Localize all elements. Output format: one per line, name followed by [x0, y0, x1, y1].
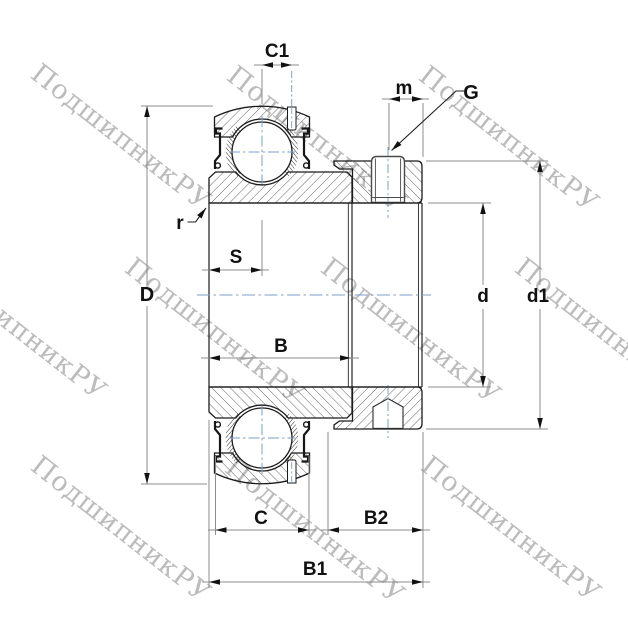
inner-ring-section — [209, 172, 352, 203]
arrowhead-b1-left — [209, 579, 220, 585]
arrowhead-b-right — [340, 355, 351, 361]
label-b: B — [274, 336, 288, 357]
g-leader-line — [392, 91, 465, 151]
arrowhead-b2-right — [412, 527, 423, 533]
arrowhead-c-right — [298, 527, 309, 533]
drawing-canvas: ПодшипникРУПодшипникРУПодшипникРУПодшипн… — [0, 0, 628, 638]
label-c1: C1 — [265, 41, 290, 62]
dimension-layer — [141, 65, 548, 588]
label-D: D — [140, 284, 154, 306]
dimension-c1 — [254, 65, 299, 107]
arrowhead-d1-bottom — [537, 418, 543, 429]
arrowhead-c-left — [216, 527, 227, 533]
arrowhead-m-right — [412, 96, 423, 102]
arrowhead-d1-top — [537, 161, 543, 172]
r-leader-line — [188, 208, 207, 222]
label-r: r — [176, 213, 184, 234]
arrowhead-b2-left — [328, 527, 339, 533]
arrowhead-r-leader — [197, 206, 208, 218]
label-d: d — [477, 286, 489, 307]
label-b1: B1 — [303, 559, 328, 580]
set-screw — [372, 147, 405, 218]
label-b2: B2 — [364, 508, 388, 529]
seal-left-pivot — [215, 163, 220, 168]
bearing-technical-drawing: C1 m G r S D B d d1 C B2 B1 — [0, 0, 628, 638]
dimension-labels: C1 m G r S D B d d1 C B2 B1 — [140, 41, 550, 580]
seal-right-pivot — [304, 163, 309, 168]
arrowhead-d-bottom — [480, 376, 486, 387]
label-g: G — [463, 82, 479, 104]
set-screw-body — [372, 157, 405, 203]
label-c: C — [254, 508, 268, 529]
arrowhead-D-top — [144, 106, 150, 117]
label-s: S — [230, 247, 243, 268]
label-m: m — [396, 78, 413, 99]
arrowhead-d-top — [480, 203, 486, 214]
arrowhead-s-right — [251, 267, 262, 273]
arrowhead-c1-left — [262, 62, 273, 68]
arrowhead-c1-right — [281, 62, 292, 68]
dimension-m — [382, 99, 429, 157]
arrowhead-b-left — [209, 355, 220, 361]
arrowhead-b1-right — [412, 579, 423, 585]
arrowhead-s-left — [209, 267, 220, 273]
arrowhead-D-bottom — [144, 473, 150, 484]
label-d1: d1 — [527, 286, 550, 307]
